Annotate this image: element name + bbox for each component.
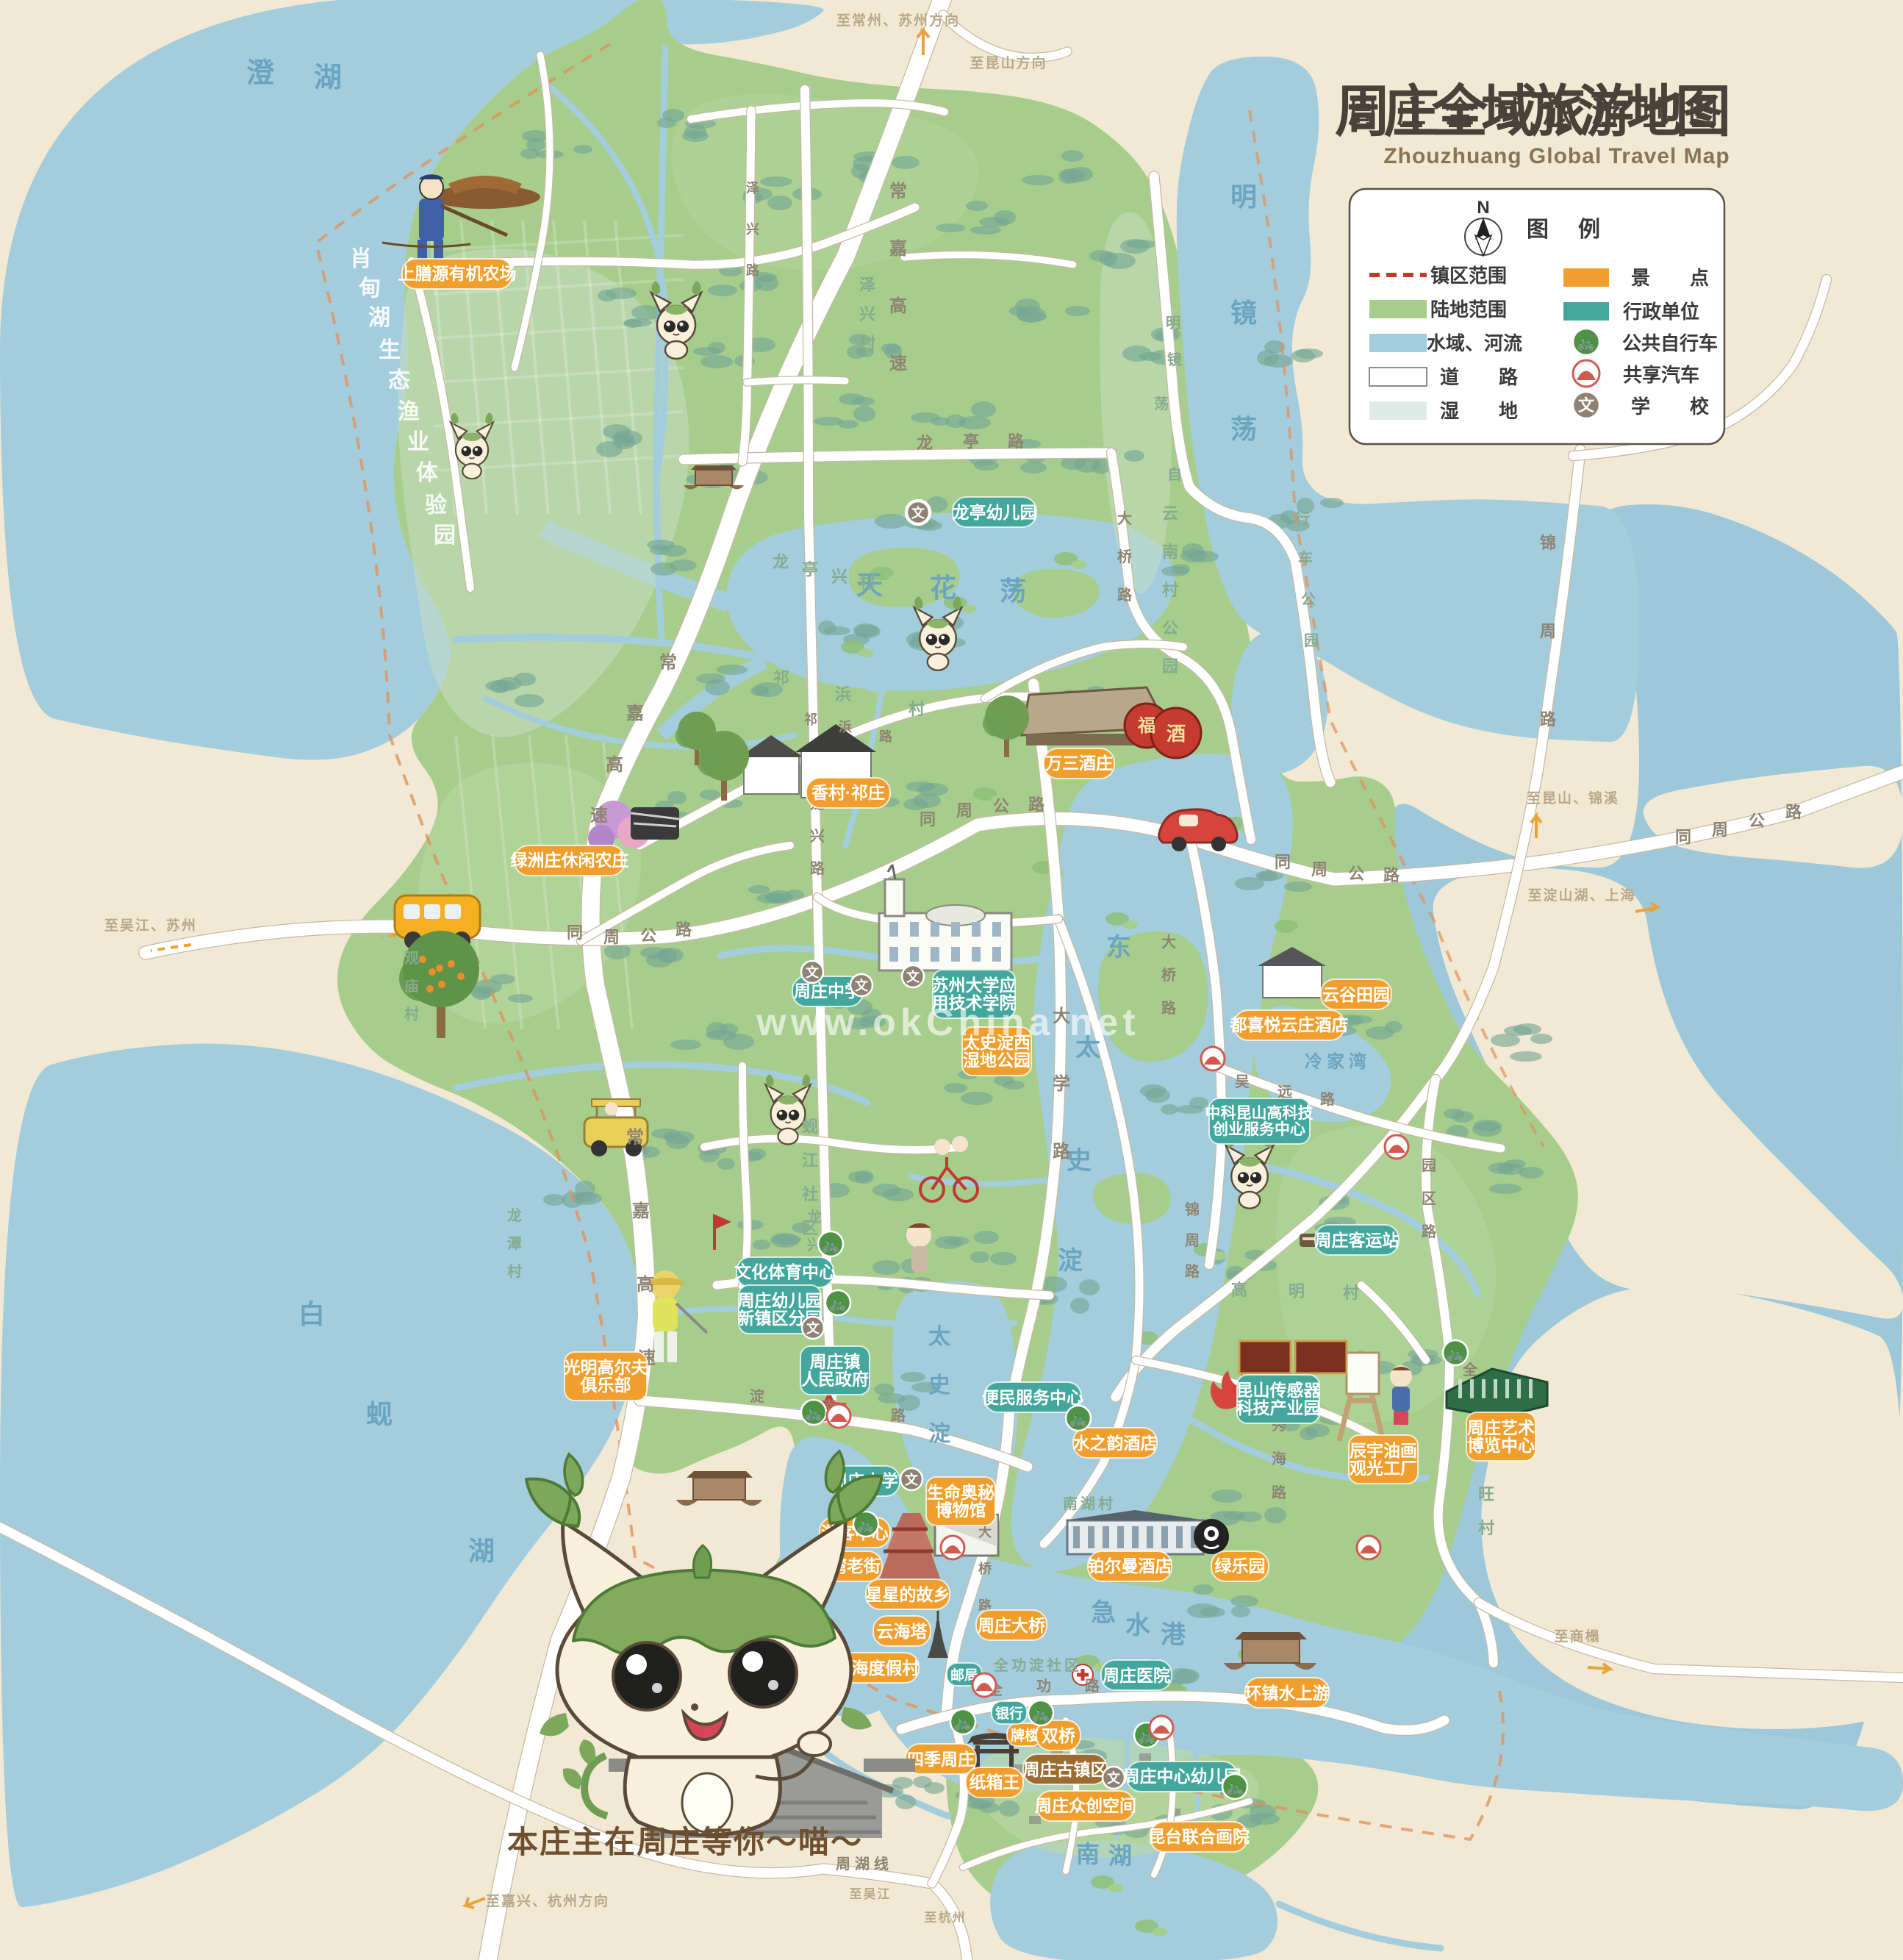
svg-text:绿洲庄休闲农庄: 绿洲庄休闲农庄 bbox=[511, 851, 629, 870]
svg-text:澄: 澄 bbox=[246, 58, 275, 89]
svg-text:路: 路 bbox=[1053, 1141, 1071, 1162]
svg-text:区: 区 bbox=[1422, 1191, 1436, 1207]
svg-text:花: 花 bbox=[930, 573, 956, 603]
svg-text:图: 图 bbox=[1527, 218, 1549, 242]
svg-text:🚲: 🚲 bbox=[856, 1517, 875, 1534]
svg-text:史: 史 bbox=[928, 1373, 950, 1398]
svg-text:至昆山方向: 至昆山方向 bbox=[970, 54, 1047, 71]
svg-text:🚲: 🚲 bbox=[821, 1237, 840, 1253]
svg-text:路: 路 bbox=[1085, 1677, 1100, 1695]
svg-text:同: 同 bbox=[567, 923, 583, 942]
svg-text:万三酒庄: 万三酒庄 bbox=[1045, 754, 1113, 773]
svg-text:牌楼: 牌楼 bbox=[1011, 1727, 1039, 1744]
svg-text:公: 公 bbox=[1749, 812, 1765, 830]
svg-text:文: 文 bbox=[806, 965, 820, 980]
svg-text:周: 周 bbox=[1311, 860, 1327, 879]
svg-text:云谷田园: 云谷田园 bbox=[1322, 985, 1390, 1004]
svg-text:江: 江 bbox=[802, 1151, 818, 1170]
svg-text:太: 太 bbox=[928, 1325, 951, 1349]
svg-text:龙亭幼儿园: 龙亭幼儿园 bbox=[953, 503, 1037, 522]
svg-text:🚲: 🚲 bbox=[828, 1295, 847, 1312]
svg-text:嘉: 嘉 bbox=[632, 1201, 650, 1221]
svg-text:路: 路 bbox=[1785, 803, 1802, 821]
svg-text:嘉: 嘉 bbox=[889, 239, 907, 259]
svg-text:绿乐园: 绿乐园 bbox=[1215, 1556, 1266, 1575]
svg-text:桥: 桥 bbox=[1161, 967, 1177, 984]
svg-text:锦: 锦 bbox=[1540, 534, 1556, 552]
svg-text:湖: 湖 bbox=[368, 306, 390, 330]
svg-text:周庄众创空间: 周庄众创空间 bbox=[1035, 1796, 1136, 1815]
svg-text:史: 史 bbox=[1067, 1147, 1092, 1175]
svg-text:明: 明 bbox=[1166, 315, 1180, 332]
svg-text:大: 大 bbox=[1161, 934, 1176, 951]
svg-text:例: 例 bbox=[1578, 218, 1600, 242]
svg-text:🚲: 🚲 bbox=[1446, 1345, 1465, 1362]
svg-text:公: 公 bbox=[1301, 591, 1316, 608]
svg-text:🚲: 🚲 bbox=[953, 1714, 972, 1731]
svg-text:肖: 肖 bbox=[350, 247, 372, 271]
svg-text:周庄古镇区: 周庄古镇区 bbox=[1023, 1760, 1108, 1779]
svg-text:同: 同 bbox=[1275, 853, 1291, 871]
svg-text:兴: 兴 bbox=[831, 568, 847, 586]
svg-text:文: 文 bbox=[855, 978, 869, 993]
svg-text:明: 明 bbox=[1289, 1282, 1305, 1301]
svg-text:共享汽车: 共享汽车 bbox=[1623, 364, 1699, 386]
svg-text:学: 学 bbox=[1053, 1073, 1070, 1094]
svg-text:行政单位: 行政单位 bbox=[1622, 301, 1699, 323]
svg-text:镜: 镜 bbox=[1167, 351, 1182, 368]
svg-text:园: 园 bbox=[1162, 657, 1178, 676]
svg-text:村: 村 bbox=[859, 335, 875, 353]
svg-text:体: 体 bbox=[416, 461, 439, 485]
svg-text:🚲: 🚲 bbox=[1031, 1706, 1050, 1723]
svg-text:速: 速 bbox=[590, 806, 608, 826]
svg-text:周庄大桥: 周庄大桥 bbox=[978, 1616, 1046, 1635]
svg-text:生命奥秘: 生命奥秘 bbox=[927, 1483, 994, 1502]
svg-text:地: 地 bbox=[1499, 400, 1518, 422]
svg-text:文: 文 bbox=[905, 1472, 919, 1487]
svg-text:科技产业园: 科技产业园 bbox=[1236, 1398, 1321, 1417]
svg-text:泽: 泽 bbox=[746, 181, 759, 196]
svg-text:功: 功 bbox=[1036, 1678, 1051, 1695]
svg-text:急: 急 bbox=[1091, 1599, 1116, 1627]
svg-text:镇区范围: 镇区范围 bbox=[1430, 265, 1507, 287]
svg-text:南湖村: 南湖村 bbox=[1063, 1495, 1116, 1512]
svg-text:陆地范围: 陆地范围 bbox=[1430, 298, 1507, 321]
svg-text:博物馆: 博物馆 bbox=[936, 1501, 986, 1520]
svg-text:社: 社 bbox=[802, 1185, 818, 1203]
svg-text:园: 园 bbox=[434, 523, 456, 548]
svg-text:蚬: 蚬 bbox=[802, 1117, 818, 1136]
svg-text:路: 路 bbox=[1028, 795, 1045, 814]
svg-text:至嘉兴、杭州方向: 至嘉兴、杭州方向 bbox=[486, 1892, 609, 1909]
svg-text:常: 常 bbox=[889, 182, 907, 201]
svg-text:态: 态 bbox=[388, 368, 410, 393]
svg-text:路: 路 bbox=[810, 859, 825, 877]
svg-text:村: 村 bbox=[507, 1263, 522, 1280]
svg-text:四季周庄: 四季周庄 bbox=[907, 1750, 975, 1769]
svg-text:龙: 龙 bbox=[507, 1206, 522, 1224]
svg-text:高: 高 bbox=[1231, 1281, 1247, 1299]
svg-text:公: 公 bbox=[1348, 865, 1364, 883]
svg-text:至吴江: 至吴江 bbox=[850, 1887, 892, 1901]
svg-text:潭: 潭 bbox=[507, 1235, 522, 1252]
svg-text:🚲: 🚲 bbox=[1225, 1779, 1244, 1796]
svg-text:同: 同 bbox=[1675, 828, 1691, 846]
svg-text:浜: 浜 bbox=[835, 685, 851, 704]
svg-text:明: 明 bbox=[1230, 182, 1257, 212]
svg-text:文: 文 bbox=[906, 969, 920, 984]
svg-text:车: 车 bbox=[1298, 549, 1313, 567]
svg-text:纸箱王: 纸箱王 bbox=[970, 1773, 1020, 1792]
svg-text:湖: 湖 bbox=[314, 62, 342, 93]
svg-text:淀: 淀 bbox=[750, 1387, 765, 1405]
svg-text:冷家湾: 冷家湾 bbox=[1305, 1051, 1371, 1072]
svg-text:周: 周 bbox=[1712, 820, 1728, 839]
svg-text:湿地公园: 湿地公园 bbox=[963, 1051, 1031, 1070]
svg-text:周: 周 bbox=[1540, 622, 1556, 640]
svg-text:湖: 湖 bbox=[1108, 1842, 1132, 1869]
svg-text:园: 园 bbox=[1304, 633, 1319, 649]
svg-text:星星的故乡: 星星的故乡 bbox=[866, 1585, 950, 1604]
svg-text:路: 路 bbox=[891, 1406, 906, 1424]
svg-text:周: 周 bbox=[603, 928, 620, 946]
svg-text:淀: 淀 bbox=[928, 1422, 950, 1446]
svg-text:酒: 酒 bbox=[1166, 723, 1186, 745]
svg-text:东: 东 bbox=[1106, 933, 1131, 962]
svg-text:文: 文 bbox=[911, 505, 925, 521]
svg-text:祁: 祁 bbox=[804, 712, 817, 727]
svg-text:自: 自 bbox=[1167, 465, 1182, 483]
svg-text:双桥: 双桥 bbox=[1042, 1726, 1076, 1745]
svg-text:周庄客运站: 周庄客运站 bbox=[1315, 1231, 1400, 1250]
svg-text:香村·祁庄: 香村·祁庄 bbox=[811, 783, 885, 802]
svg-text:至商榻: 至商榻 bbox=[1554, 1628, 1600, 1645]
svg-text:至杭州: 至杭州 bbox=[925, 1910, 967, 1925]
svg-text:海: 海 bbox=[1272, 1450, 1286, 1467]
svg-text:🚲: 🚲 bbox=[1576, 333, 1596, 351]
svg-text:校: 校 bbox=[1690, 396, 1710, 418]
svg-text:学: 学 bbox=[1631, 396, 1650, 418]
svg-text:点: 点 bbox=[1690, 267, 1709, 289]
svg-text:N: N bbox=[1477, 198, 1489, 218]
svg-text:路: 路 bbox=[746, 262, 760, 278]
svg-text:园: 园 bbox=[1422, 1158, 1436, 1174]
svg-text:🚲: 🚲 bbox=[1069, 1411, 1088, 1428]
svg-text:银行: 银行 bbox=[995, 1705, 1023, 1722]
svg-text:人民政府: 人民政府 bbox=[801, 1370, 869, 1389]
svg-text:村: 村 bbox=[1478, 1519, 1494, 1537]
svg-text:村: 村 bbox=[404, 1006, 419, 1023]
svg-text:路: 路 bbox=[1320, 1090, 1336, 1108]
svg-text:业: 业 bbox=[407, 430, 429, 454]
svg-text:光明高尔夫: 光明高尔夫 bbox=[563, 1358, 649, 1377]
svg-text:村: 村 bbox=[909, 700, 925, 718]
svg-text:旺: 旺 bbox=[1478, 1485, 1494, 1503]
svg-text:速: 速 bbox=[889, 354, 907, 373]
svg-text:行: 行 bbox=[1294, 509, 1310, 527]
svg-text:常: 常 bbox=[659, 653, 677, 673]
svg-text:龙: 龙 bbox=[807, 1208, 822, 1226]
svg-text:桥: 桥 bbox=[978, 1561, 992, 1576]
svg-text:路: 路 bbox=[675, 920, 692, 939]
svg-text:全功淀社区: 全功淀社区 bbox=[993, 1656, 1082, 1674]
svg-text:周庄医院: 周庄医院 bbox=[1103, 1666, 1170, 1685]
svg-text:至吴江、苏州: 至吴江、苏州 bbox=[104, 917, 197, 934]
svg-text:水: 水 bbox=[1125, 1612, 1151, 1639]
svg-text:道: 道 bbox=[1440, 366, 1459, 388]
svg-text:观: 观 bbox=[404, 951, 419, 967]
svg-text:生: 生 bbox=[379, 338, 401, 362]
svg-text:便民服务中心: 便民服务中心 bbox=[982, 1388, 1083, 1407]
svg-text:路: 路 bbox=[879, 729, 893, 744]
svg-text:至淀山湖、上海: 至淀山湖、上海 bbox=[1527, 887, 1635, 904]
svg-text:淀: 淀 bbox=[1058, 1247, 1083, 1275]
svg-text:公: 公 bbox=[1162, 619, 1178, 637]
svg-text:铂尔曼酒店: 铂尔曼酒店 bbox=[1088, 1556, 1172, 1575]
svg-text:湿: 湿 bbox=[1440, 400, 1459, 422]
svg-text:环镇水上游: 环镇水上游 bbox=[1245, 1684, 1330, 1703]
svg-text:湖: 湖 bbox=[468, 1536, 495, 1566]
svg-text:吴: 吴 bbox=[1235, 1073, 1250, 1090]
svg-text:文化体育中心: 文化体育中心 bbox=[734, 1262, 836, 1281]
svg-text:路: 路 bbox=[1540, 710, 1557, 729]
svg-text:周庄艺术: 周庄艺术 bbox=[1467, 1418, 1535, 1437]
svg-text:龙: 龙 bbox=[773, 553, 789, 571]
svg-text:路: 路 bbox=[1161, 999, 1177, 1017]
svg-text:辰宇油画: 辰宇油画 bbox=[1350, 1441, 1417, 1460]
svg-text:上膳源有机农场: 上膳源有机农场 bbox=[398, 264, 517, 283]
svg-text:桥: 桥 bbox=[1117, 548, 1133, 565]
svg-text:荡: 荡 bbox=[1154, 396, 1169, 412]
svg-text:路: 路 bbox=[1117, 586, 1133, 604]
svg-text:村: 村 bbox=[1343, 1284, 1359, 1302]
svg-text:大: 大 bbox=[978, 1524, 992, 1539]
svg-text:创业服务中心: 创业服务中心 bbox=[1212, 1120, 1305, 1138]
svg-text:www.okChina.net: www.okChina.net bbox=[756, 1001, 1139, 1044]
svg-text:南: 南 bbox=[1162, 543, 1178, 561]
svg-text:苏州大学应: 苏州大学应 bbox=[932, 976, 1017, 995]
svg-text:都喜悦云庄酒店: 都喜悦云庄酒店 bbox=[1230, 1015, 1349, 1034]
svg-text:常: 常 bbox=[626, 1128, 644, 1148]
svg-text:公: 公 bbox=[993, 797, 1009, 815]
svg-text:Zhouzhuang Global Travel Map: Zhouzhuang Global Travel Map bbox=[1383, 144, 1730, 168]
svg-text:周: 周 bbox=[956, 801, 972, 820]
svg-text:镜: 镜 bbox=[1230, 298, 1257, 328]
svg-text:嘉: 嘉 bbox=[626, 704, 644, 723]
svg-text:至常州、苏州方向: 至常州、苏州方向 bbox=[836, 12, 960, 29]
svg-text:中科昆山高科技: 中科昆山高科技 bbox=[1205, 1104, 1314, 1122]
svg-text:大: 大 bbox=[1117, 510, 1132, 527]
svg-text:高: 高 bbox=[889, 296, 907, 316]
svg-text:文: 文 bbox=[806, 1320, 820, 1336]
svg-text:文: 文 bbox=[1107, 1770, 1121, 1786]
svg-text:亭: 亭 bbox=[963, 432, 979, 451]
svg-text:昆台联合画院: 昆台联合画院 bbox=[1148, 1827, 1250, 1846]
svg-text:路: 路 bbox=[1383, 866, 1400, 884]
svg-text:全: 全 bbox=[1462, 1361, 1478, 1378]
svg-text:同: 同 bbox=[920, 810, 936, 829]
svg-text:蚬: 蚬 bbox=[366, 1399, 393, 1429]
svg-text:文: 文 bbox=[1578, 396, 1595, 415]
svg-text:南: 南 bbox=[1076, 1841, 1100, 1867]
svg-text:高: 高 bbox=[637, 1274, 654, 1295]
svg-text:高: 高 bbox=[606, 754, 623, 775]
svg-text:昆山传感器: 昆山传感器 bbox=[1236, 1381, 1322, 1400]
svg-text:周庄幼儿园: 周庄幼儿园 bbox=[738, 1291, 823, 1310]
svg-text:周庄镇: 周庄镇 bbox=[810, 1352, 861, 1371]
svg-text:荡: 荡 bbox=[1230, 414, 1257, 444]
svg-text:路: 路 bbox=[1008, 432, 1025, 451]
svg-text:亭: 亭 bbox=[802, 560, 818, 579]
svg-text:村: 村 bbox=[1162, 581, 1178, 599]
svg-text:博览中心: 博览中心 bbox=[1467, 1436, 1535, 1455]
svg-text:锦: 锦 bbox=[1185, 1201, 1200, 1218]
svg-text:村: 村 bbox=[859, 573, 875, 592]
svg-text:白: 白 bbox=[298, 1299, 325, 1329]
svg-text:祁: 祁 bbox=[773, 669, 789, 687]
svg-text:庙: 庙 bbox=[404, 977, 419, 995]
svg-text:俱乐部: 俱乐部 bbox=[580, 1376, 631, 1395]
svg-text:路: 路 bbox=[1185, 1262, 1200, 1280]
svg-text:🚲: 🚲 bbox=[804, 1405, 823, 1422]
svg-text:本庄主在周庄等你～喵～: 本庄主在周庄等你～喵～ bbox=[507, 1825, 863, 1859]
svg-text:路: 路 bbox=[1499, 366, 1519, 388]
svg-text:云海塔: 云海塔 bbox=[877, 1622, 928, 1641]
svg-text:至昆山、锦溪: 至昆山、锦溪 bbox=[1527, 790, 1619, 806]
svg-text:观光工厂: 观光工厂 bbox=[1350, 1459, 1417, 1478]
svg-text:云: 云 bbox=[1162, 504, 1178, 523]
svg-text:兴: 兴 bbox=[810, 828, 825, 845]
svg-text:福: 福 bbox=[1137, 716, 1155, 736]
svg-text:水之韵酒店: 水之韵酒店 bbox=[1073, 1434, 1158, 1453]
svg-text:兴: 兴 bbox=[859, 305, 875, 323]
svg-text:浜: 浜 bbox=[839, 720, 852, 734]
svg-text:验: 验 bbox=[425, 493, 447, 518]
svg-text:荡: 荡 bbox=[1000, 576, 1026, 606]
svg-text:周: 周 bbox=[1185, 1233, 1200, 1249]
svg-text:泽: 泽 bbox=[859, 276, 875, 294]
svg-text:渔: 渔 bbox=[398, 400, 420, 424]
svg-text:景: 景 bbox=[1631, 267, 1650, 289]
svg-text:路: 路 bbox=[1272, 1484, 1287, 1501]
svg-text:水域、河流: 水域、河流 bbox=[1427, 332, 1522, 354]
svg-text:兴: 兴 bbox=[746, 222, 759, 237]
svg-text:甸: 甸 bbox=[359, 276, 381, 301]
svg-text:公共自行车: 公共自行车 bbox=[1622, 332, 1718, 354]
svg-text:港: 港 bbox=[1161, 1621, 1186, 1649]
svg-text:龙: 龙 bbox=[917, 434, 933, 452]
svg-text:路: 路 bbox=[1422, 1223, 1437, 1240]
svg-text:公: 公 bbox=[640, 926, 656, 945]
